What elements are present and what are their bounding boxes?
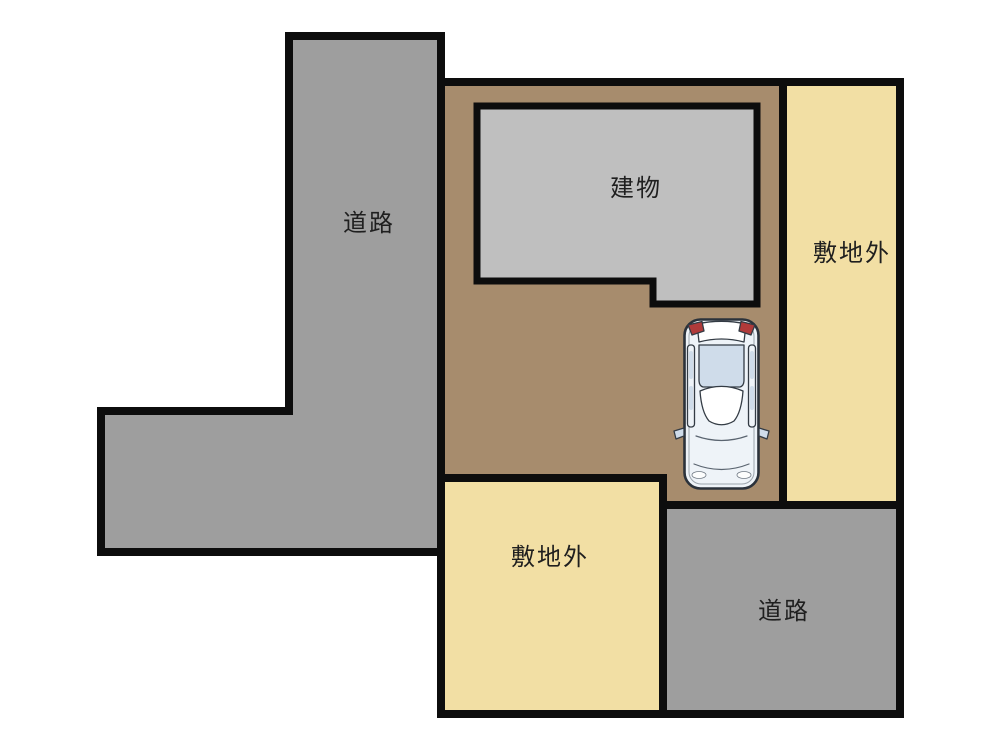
- road-bottom-label: 道路: [758, 598, 810, 625]
- car-window-left-front: [689, 351, 693, 379]
- outside-right-region: [783, 82, 900, 505]
- car-rear-window: [697, 321, 746, 342]
- building-label: 建物: [610, 175, 662, 202]
- car-window-right-rear: [750, 386, 754, 410]
- car-window-right-front: [750, 351, 754, 379]
- outside-bottom-region: [441, 478, 663, 714]
- car-window-left-rear: [689, 386, 693, 410]
- outside-right-label: 敷地外: [813, 240, 891, 267]
- car-headlight-left: [692, 472, 706, 479]
- car-roof-glass: [699, 345, 744, 387]
- car-headlight-right: [737, 472, 751, 479]
- site-plan-canvas: 道路 建物 敷地外 敷地外 道路: [0, 0, 1000, 750]
- car-top-view: [674, 320, 769, 489]
- site-plan-diagram: 道路 建物 敷地外 敷地外 道路: [0, 0, 1000, 750]
- outside-bottom-label: 敷地外: [511, 544, 589, 571]
- road-left-label: 道路: [343, 210, 395, 237]
- building-region: [477, 106, 757, 304]
